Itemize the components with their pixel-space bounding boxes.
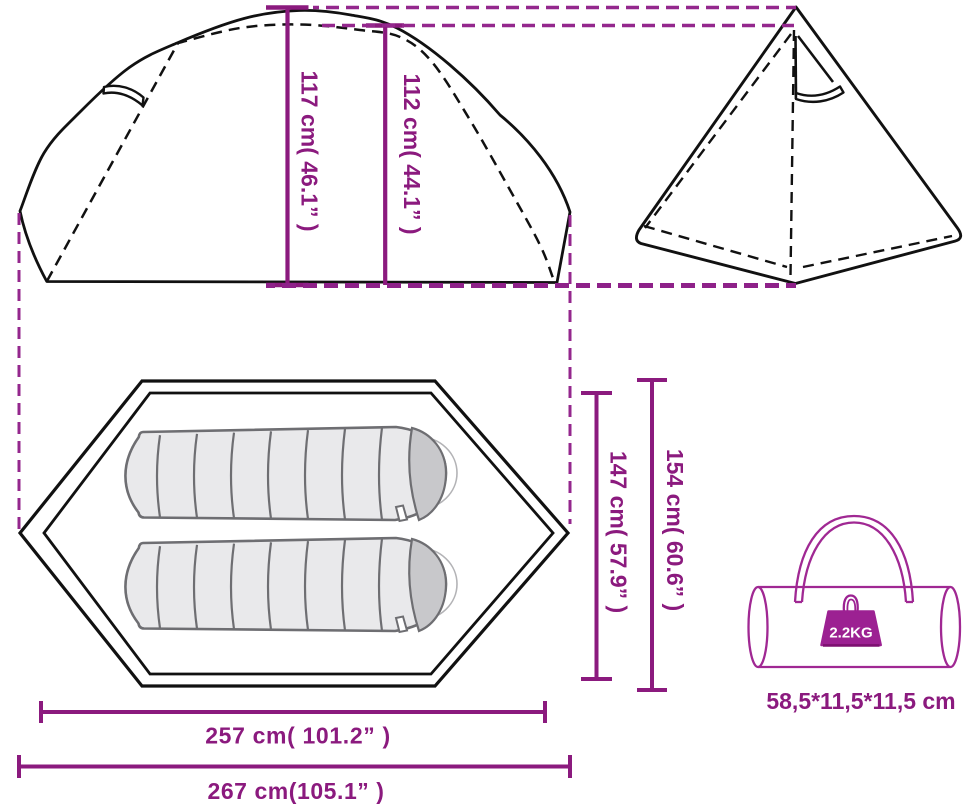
svg-text:58,5*11,5*11,5 cm: 58,5*11,5*11,5 cm [766,688,955,714]
svg-text:267 cm(105.1” ): 267 cm(105.1” ) [207,778,384,804]
svg-text:2.2KG: 2.2KG [829,625,872,642]
svg-text:154 cm( 60.6” ): 154 cm( 60.6” ) [662,449,688,611]
svg-text:257 cm( 101.2” ): 257 cm( 101.2” ) [205,723,391,749]
svg-text:147 cm( 57.9” ): 147 cm( 57.9” ) [606,451,632,613]
svg-text:112 cm( 44.1” ): 112 cm( 44.1” ) [399,73,425,234]
svg-text:117 cm( 46.1” ): 117 cm( 46.1” ) [297,70,323,231]
